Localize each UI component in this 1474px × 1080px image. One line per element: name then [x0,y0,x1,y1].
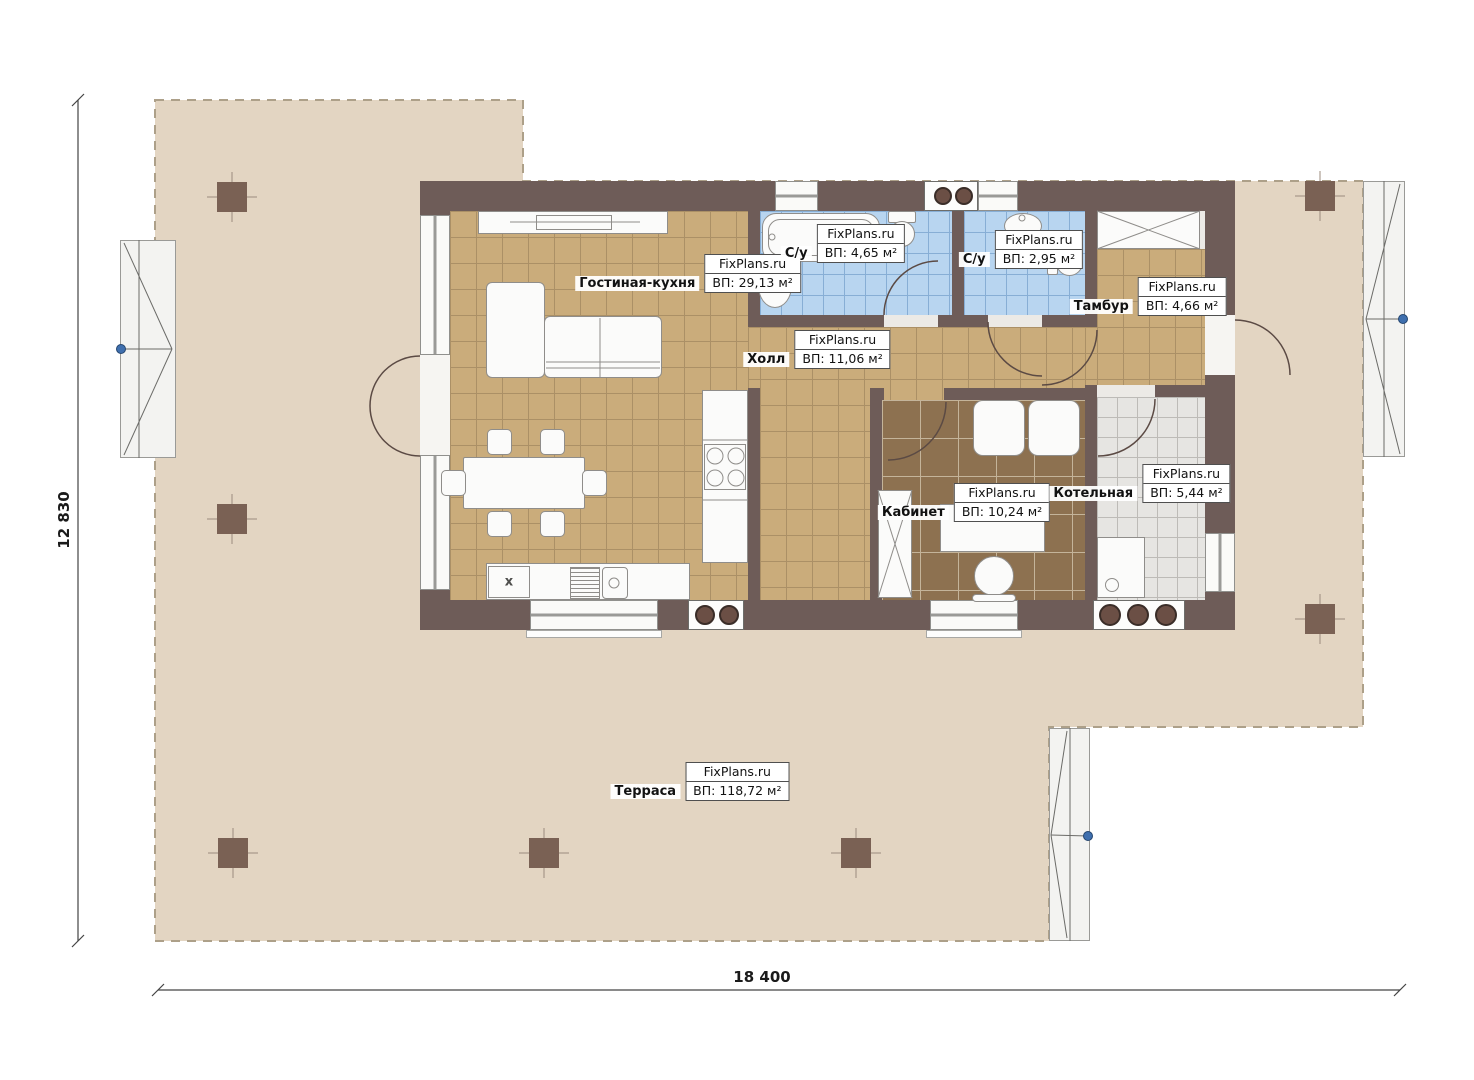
vent-pipe-icon [695,605,715,625]
office-chair-back [972,594,1016,602]
chair [540,511,565,537]
wall-left [420,181,450,215]
column [217,182,247,212]
chair [582,470,607,496]
room-area: ВП: 4,65 м² [818,243,904,262]
room-name: Холл [743,352,789,367]
room-name: С/у [959,252,990,267]
door-opening-entrance [1205,315,1235,375]
armchair [973,400,1025,456]
window-symbol-left [120,240,176,458]
vent-shaft-top [924,181,978,211]
room-area: ВП: 2,95 м² [996,249,1082,268]
watermark: FixPlans.ru [1139,278,1225,296]
watermark: FixPlans.ru [1143,465,1229,483]
room-label-bath1: С/у FixPlans.ruВП: 4,65 м² [781,222,905,263]
armchair [1028,400,1080,456]
vent-pipe-icon [719,605,739,625]
wall-right [1205,375,1235,533]
tv [536,215,612,230]
window-top-1 [775,181,818,211]
room-area: ВП: 10,24 м² [955,502,1049,521]
vent-pipe-icon [1127,604,1149,626]
door-arc-terrace [370,406,420,456]
room-label-tambur: Тамбур FixPlans.ruВП: 4,66 м² [1070,275,1227,316]
wall-top [420,181,775,211]
closet [1097,211,1200,249]
vent-pipe-icon [955,187,973,205]
room-name: Тамбур [1070,299,1133,314]
watermark: FixPlans.ru [955,484,1049,502]
partition-cabinet-top [870,388,884,400]
cooktop [704,444,746,490]
partition-tambur-boiler [1155,385,1205,397]
room-label-hall: Холл FixPlans.ruВП: 11,06 м² [743,328,890,369]
room-label-bath2: С/у FixPlans.ruВП: 2,95 м² [959,228,1083,269]
sofa-seat-section [544,316,662,378]
dish-rack [570,567,600,599]
room-area: ВП: 11,06 м² [795,349,889,368]
vent-pipe-icon [934,187,952,205]
partition-bath-hall [938,315,988,327]
kitchen-sink [602,567,628,599]
column [1305,181,1335,211]
office-chair [974,556,1014,596]
watermark: FixPlans.ru [996,231,1082,249]
opening-hall-tambur [1085,327,1097,385]
wall-bottom [658,600,688,630]
window-boiler [1205,533,1235,592]
wall-bottom [1018,600,1093,630]
window-cabinet [930,600,1018,630]
partition-kitchen-hall [748,388,760,600]
dishwasher-mark: х [505,575,513,590]
vent-pipe-icon [1155,604,1177,626]
watermark: FixPlans.ru [795,331,889,349]
chair [540,429,565,455]
chair [487,429,512,455]
wall-top [818,181,924,211]
room-area: ВП: 29,13 м² [705,273,799,292]
room-label-terrace: Терраса FixPlans.ruВП: 118,72 м² [611,760,790,801]
window-sill [526,630,662,638]
partition-bath-hall [748,315,884,327]
column [218,838,248,868]
wall-top [1018,181,1235,211]
room-label-cabinet: Кабинет FixPlans.ruВП: 10,24 м² [878,481,1050,522]
wall-bottom [744,600,930,630]
room-area: ВП: 4,66 м² [1139,296,1225,315]
column [1305,604,1335,634]
chair [487,511,512,537]
chair [441,470,466,496]
room-label-living-kitchen: Гостиная-кухня FixPlans.ruВП: 29,13 м² [575,252,801,293]
sofa-corner-section [486,282,545,378]
room-area: ВП: 5,44 м² [1143,483,1229,502]
window-symbol-bottom [1049,728,1090,941]
vent-shaft-boiler [1093,600,1185,630]
floor-plan: х [0,0,1474,1080]
wall-left [420,590,450,630]
door-arc-entrance [1235,320,1290,375]
column [529,838,559,868]
room-name: Котельная [1049,486,1137,501]
room-tambur-floor [1097,249,1205,385]
dimension-width: 18 400 [733,968,790,986]
room-area: ВП: 118,72 м² [686,781,788,800]
window-symbol-right [1363,181,1405,457]
room-label-boiler: Котельная FixPlans.ruВП: 5,44 м² [1049,462,1230,503]
room-name: Терраса [611,784,681,799]
partition-cabinet-top [944,388,1085,400]
watermark: FixPlans.ru [818,225,904,243]
room-name: Кабинет [878,505,949,520]
watermark: FixPlans.ru [686,763,788,781]
window-kitchen [530,600,658,630]
vent-pipe-icon [1099,604,1121,626]
window-left-1 [420,215,450,355]
boiler-burner [1105,578,1119,592]
dining-table [463,457,585,509]
dimension-height: 12 830 [55,491,73,548]
door-opening-terrace [420,355,450,455]
window-sill [926,630,1022,638]
door-arc-terrace [370,356,420,406]
vent-shaft-kitchen [688,600,744,630]
wall-right [1205,592,1235,630]
boiler-unit [1097,537,1145,598]
room-name: Гостиная-кухня [575,276,699,291]
column [217,504,247,534]
room-name: С/у [781,246,812,261]
window-top-2 [978,181,1018,211]
column [841,838,871,868]
